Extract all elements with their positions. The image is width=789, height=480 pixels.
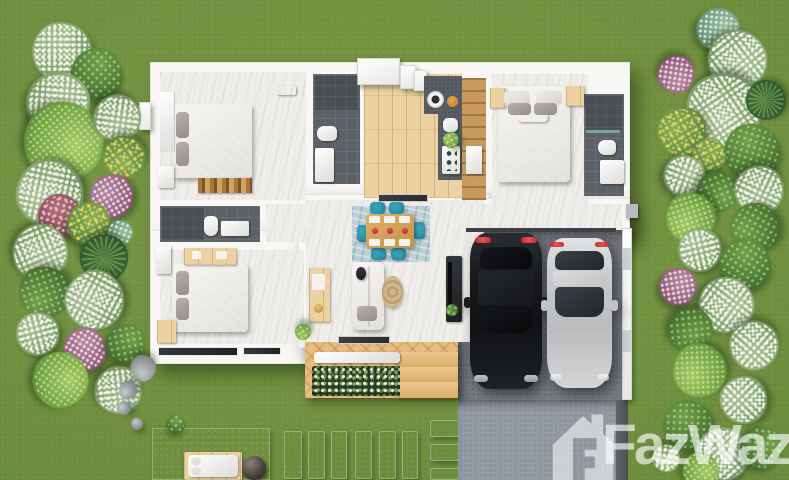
bedroom1-nightstand	[158, 166, 174, 188]
tail-light	[550, 242, 564, 247]
dining-chair	[371, 248, 386, 260]
side-mirror	[464, 297, 471, 308]
daybed-pillow	[191, 467, 201, 475]
deck-step	[400, 382, 458, 398]
placemat	[369, 216, 380, 223]
exterior-step	[626, 204, 638, 218]
outdoor-daybed	[184, 452, 242, 480]
walkway-step	[622, 330, 632, 352]
round-jute-rug	[382, 276, 403, 308]
bed-pillow	[176, 298, 189, 320]
side-mirror	[541, 300, 548, 311]
daybed-pillow	[191, 457, 201, 465]
tail-light	[475, 237, 491, 243]
kitchen-prep-sink	[443, 118, 458, 132]
stepping-stone	[355, 431, 372, 479]
floor-lamp	[356, 267, 366, 280]
rooftop-unit	[357, 58, 400, 85]
exterior-ac-unit	[139, 102, 151, 130]
stepping-stone	[379, 431, 396, 479]
deck-door-mat	[338, 336, 390, 344]
bed-pillow	[176, 142, 189, 166]
red-plate	[372, 228, 378, 234]
dining-chair	[389, 202, 404, 214]
tv-screen	[448, 262, 452, 312]
entry-door-mat	[378, 194, 428, 202]
shower-glass-divider	[586, 130, 620, 133]
bedroom1-wardrobe	[160, 92, 175, 152]
glass-door	[158, 347, 238, 356]
rear-window	[555, 251, 604, 270]
desk-item	[216, 251, 227, 259]
bed-blanket	[190, 266, 247, 330]
bathroom1-shower	[162, 208, 204, 240]
bathroom2-vanity	[315, 148, 334, 182]
deck-bench	[314, 352, 400, 363]
bed-pillow	[534, 103, 557, 115]
bathroom1-vanity	[221, 221, 249, 236]
kitchen-pantry-shelves	[462, 78, 486, 200]
decor-sphere	[242, 456, 266, 480]
black-car	[470, 233, 542, 389]
tail-light	[521, 237, 537, 243]
bed-pillow	[508, 103, 531, 115]
car-roof	[478, 271, 534, 305]
deck-step	[400, 367, 458, 382]
dining-chair	[370, 202, 385, 214]
watermark-brand-text: FazWaz	[602, 412, 789, 478]
sofa-throw-pillow	[357, 306, 377, 321]
rear-window	[480, 247, 532, 269]
dining-chair	[391, 248, 406, 260]
terrace-floor	[460, 204, 622, 230]
refrigerator	[466, 146, 482, 174]
bed-pillow	[176, 112, 189, 138]
wall-vent	[277, 86, 296, 95]
floorplan-render: FazWaz	[0, 0, 789, 480]
bed-blanket	[191, 107, 251, 176]
deck-planter	[312, 366, 400, 396]
placemat	[369, 239, 380, 246]
stepping-stone	[284, 431, 302, 479]
car-roof	[553, 271, 606, 286]
bedroom2-wardrobe	[156, 246, 171, 274]
bathroom1-toilet	[204, 216, 218, 236]
windshield	[480, 307, 532, 333]
headlight	[597, 374, 609, 381]
red-plate	[387, 228, 393, 234]
bed-blanket	[500, 122, 568, 180]
headlight	[524, 375, 538, 382]
bathroom3-toilet	[598, 140, 616, 155]
kitchen-sink	[428, 92, 443, 107]
placemat	[399, 216, 410, 223]
windshield	[555, 287, 604, 317]
walkway-step	[622, 248, 632, 270]
bedroom3-nightstand	[566, 86, 584, 106]
placemat	[384, 216, 395, 223]
placemat	[384, 239, 395, 246]
bed-pillow	[176, 271, 189, 295]
tail-light	[595, 242, 609, 247]
stove-burners	[445, 149, 457, 171]
console-papers	[312, 274, 325, 290]
stepping-stone	[308, 431, 325, 479]
kitchen-bowl	[447, 96, 458, 107]
bathroom2-toilet	[317, 126, 337, 141]
dining-chair	[413, 222, 425, 239]
console-bowl	[314, 304, 323, 313]
sliding-door-track	[466, 228, 616, 232]
hallway-floor	[266, 204, 306, 242]
deck-step	[400, 352, 458, 367]
bedroom1-bookshelf	[198, 178, 252, 193]
desk-item	[192, 251, 201, 259]
placemat	[399, 239, 410, 246]
headlight	[474, 375, 488, 382]
glass-window	[243, 347, 281, 355]
side-mirror	[611, 300, 618, 311]
bedroom2-cabinet	[157, 320, 176, 343]
silver-car	[547, 238, 612, 388]
stepping-stone	[331, 431, 347, 479]
headlight	[550, 374, 562, 381]
red-plate	[402, 228, 408, 234]
bathroom2-shower	[315, 76, 358, 110]
stepping-stone	[402, 431, 418, 479]
bathroom3-shower	[586, 96, 622, 130]
bathroom3-vanity	[600, 160, 624, 184]
